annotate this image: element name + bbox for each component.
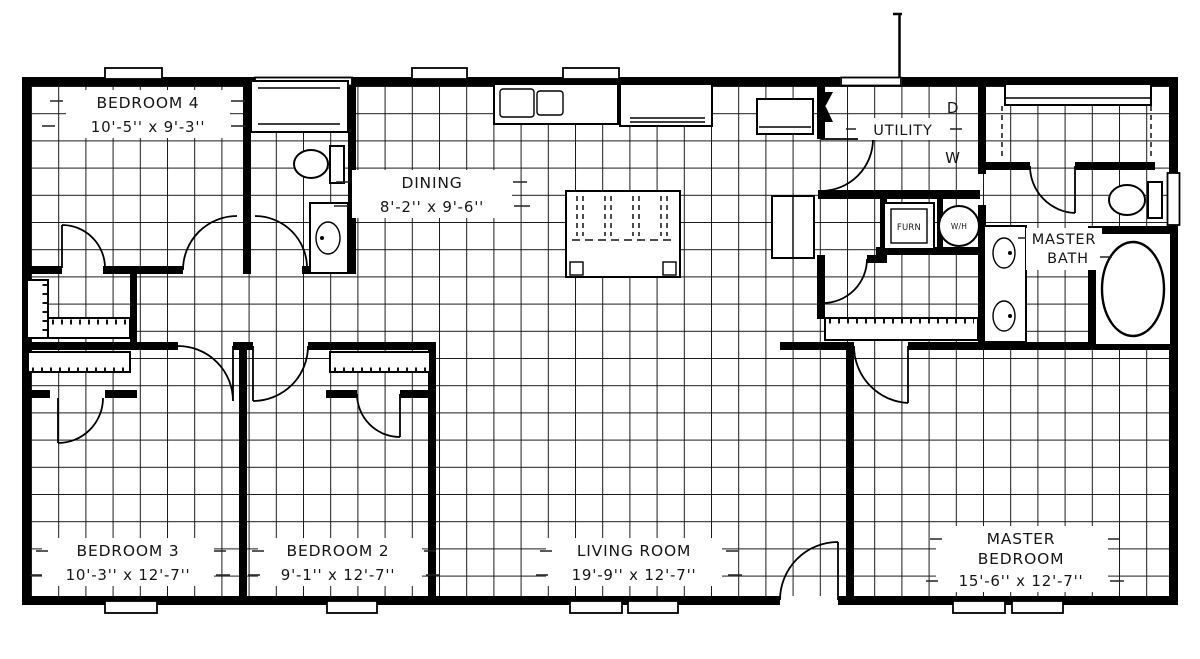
room-name: BATH — [1047, 251, 1089, 267]
label-utility: UTILITY — [846, 118, 962, 140]
window-icon — [570, 601, 622, 613]
room-dims: 9'-1'' x 12'-7'' — [281, 566, 396, 584]
label-bedroom3: BEDROOM 3 10'-3'' x 12'-7'' — [30, 538, 230, 586]
room-name: BEDROOM 3 — [77, 542, 180, 560]
room-name: BEDROOM 4 — [97, 94, 200, 112]
furnace-label: FURN — [897, 223, 921, 233]
vanity-cabinet — [984, 226, 1026, 342]
window-icon — [563, 68, 619, 79]
floorplan-drawing: BEDROOM 4 10'-5'' x 9'-3'' DINING 8'-2''… — [0, 0, 1200, 659]
dryer-label: D — [947, 99, 959, 117]
label-living-room: LIVING ROOM 19'-9'' x 12'-7'' — [536, 538, 742, 586]
label-dining: DINING 8'-2'' x 9'-6'' — [334, 170, 530, 218]
room-name: MASTER — [1032, 232, 1097, 248]
label-master-bath: MASTER BATH — [1018, 228, 1112, 270]
toilet-tank — [330, 146, 344, 183]
fridge-fixture — [757, 99, 813, 134]
toilet-fixture — [1109, 185, 1145, 215]
sink-drain — [320, 236, 324, 240]
back-door — [841, 78, 901, 86]
room-dims: 19'-9'' x 12'-7'' — [572, 566, 697, 584]
window-icon — [1168, 173, 1180, 225]
window-icon — [327, 601, 377, 613]
washer-label: W — [945, 149, 961, 167]
room-dims: 10'-5'' x 9'-3'' — [91, 118, 206, 136]
water-heater-label: W/H — [951, 222, 967, 231]
room-name: BEDROOM 2 — [287, 542, 390, 560]
room-name: BEDROOM — [978, 550, 1065, 568]
window-icon — [1012, 601, 1063, 613]
kitchen-counter — [494, 84, 618, 124]
window-icon — [412, 68, 467, 79]
window-icon — [105, 68, 162, 79]
room-name: MASTER — [987, 530, 1056, 548]
window-icon — [953, 601, 1005, 613]
label-bedroom2: BEDROOM 2 9'-1'' x 12'-7'' — [248, 538, 440, 586]
room-name: LIVING ROOM — [577, 542, 691, 560]
room-name: DINING — [401, 174, 462, 192]
room-dims: 8'-2'' x 9'-6'' — [380, 198, 484, 216]
room-dims: 15'-6'' x 12'-7'' — [959, 572, 1084, 590]
garden-tub-fixture — [1102, 242, 1164, 336]
vent-pipe-line — [893, 14, 902, 77]
room-name: UTILITY — [873, 123, 932, 139]
floorplan: BEDROOM 4 10'-5'' x 9'-3'' DINING 8'-2''… — [0, 0, 1200, 659]
window-icon — [105, 601, 157, 613]
label-master-bedroom: MASTER BEDROOM 15'-6'' x 12'-7'' — [926, 526, 1124, 592]
walkin-closet-shelf — [1005, 84, 1151, 105]
toilet-tank — [1148, 182, 1162, 218]
toilet-fixture — [294, 150, 328, 178]
range-fixture — [620, 84, 712, 126]
sink-drain — [1008, 251, 1012, 255]
window-icon — [628, 601, 678, 613]
label-bedroom4: BEDROOM 4 10'-5'' x 9'-3'' — [42, 90, 246, 138]
sink-drain — [1008, 314, 1012, 318]
room-dims: 10'-3'' x 12'-7'' — [66, 566, 191, 584]
